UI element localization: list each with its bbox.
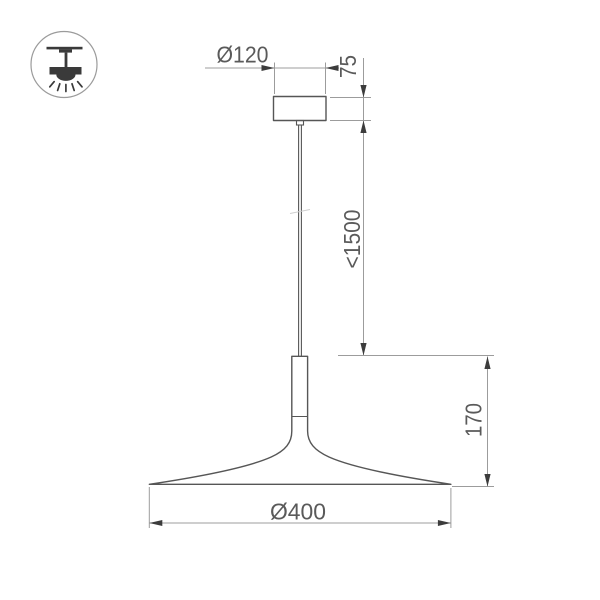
dim-label-suspension-length: <1500 — [339, 210, 365, 269]
dim-label-shade-height: 170 — [461, 403, 487, 437]
dimension-suspension-length: <1500 — [339, 210, 367, 356]
icon-mount-block — [59, 49, 72, 52]
icon-stem — [65, 53, 68, 68]
canopy — [274, 97, 327, 121]
icon-circle-border — [31, 32, 97, 98]
arrowhead-up — [360, 121, 366, 134]
pendant-lamp-drawing: Ø120 75 <1500 170 — [0, 0, 600, 600]
arrowhead-left — [149, 520, 162, 526]
shade-and-stem — [149, 356, 451, 484]
dimension-canopy-height: 75 — [330, 55, 371, 356]
icon-ceiling-line — [47, 47, 83, 50]
arrowhead-down — [484, 474, 490, 487]
arrowhead-down — [360, 343, 366, 356]
icon-lamp-body — [50, 67, 82, 75]
arrowhead-up — [484, 357, 490, 370]
dimension-drawing-page: Ø120 75 <1500 170 — [0, 0, 600, 600]
dimension-shade-diameter: Ø400 — [149, 487, 451, 528]
lamp-outline — [149, 97, 451, 485]
dim-label-canopy-diameter: Ø120 — [217, 42, 269, 68]
arrowhead-down — [360, 85, 366, 98]
pendant-lamp-icon — [31, 32, 97, 98]
wire-break-mark — [290, 210, 310, 214]
dim-label-shade-diameter: Ø400 — [270, 499, 326, 525]
dim-label-canopy-height: 75 — [335, 55, 361, 78]
dimension-canopy-diameter: Ø120 — [205, 42, 339, 95]
arrowhead-right — [438, 520, 451, 526]
